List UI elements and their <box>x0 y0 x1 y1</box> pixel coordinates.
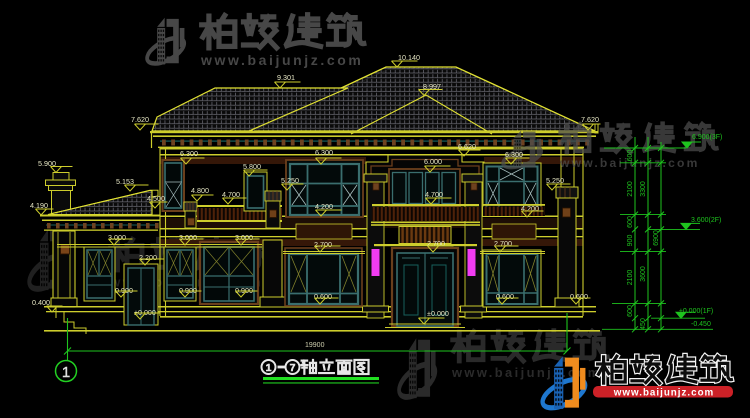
svg-text:600: 600 <box>627 305 634 317</box>
svg-text:3.000: 3.000 <box>108 233 126 242</box>
svg-text:9.301: 9.301 <box>277 73 295 82</box>
svg-text:600: 600 <box>627 216 634 228</box>
svg-text:2100: 2100 <box>627 181 634 197</box>
svg-text:6.900(3F): 6.900(3F) <box>692 134 722 141</box>
svg-text:www.baijunjz.com: www.baijunjz.com <box>451 365 602 380</box>
svg-text:450: 450 <box>640 318 647 330</box>
svg-text:7.620: 7.620 <box>581 115 599 124</box>
svg-text:www.baijunjz.com: www.baijunjz.com <box>200 52 363 68</box>
svg-text:3.000: 3.000 <box>235 233 253 242</box>
svg-text:600: 600 <box>627 150 634 162</box>
svg-text:7.620: 7.620 <box>131 115 149 124</box>
svg-text:0.600: 0.600 <box>496 292 514 301</box>
svg-text:4.200: 4.200 <box>521 204 539 213</box>
svg-text:900: 900 <box>627 235 634 247</box>
svg-text:6.300: 6.300 <box>315 148 333 157</box>
svg-text:4.800: 4.800 <box>191 186 209 195</box>
svg-text:3.000: 3.000 <box>179 233 197 242</box>
svg-text:6.300: 6.300 <box>180 149 198 158</box>
svg-text:±0.000: ±0.000 <box>427 309 449 318</box>
svg-text:19900: 19900 <box>305 342 325 349</box>
svg-text:6900: 6900 <box>653 230 660 246</box>
svg-text:0.600: 0.600 <box>314 292 332 301</box>
svg-text:1: 1 <box>266 362 272 374</box>
svg-text:www.baijunjz.com: www.baijunjz.com <box>613 388 715 399</box>
svg-text:-0.450: -0.450 <box>691 321 711 328</box>
svg-text:2.700: 2.700 <box>314 240 332 249</box>
svg-text:2.700: 2.700 <box>494 239 512 248</box>
svg-text:2.700: 2.700 <box>427 239 445 248</box>
svg-text:7: 7 <box>290 362 296 374</box>
svg-text:3300: 3300 <box>640 181 647 197</box>
svg-text:0.600: 0.600 <box>570 292 588 301</box>
svg-text:6.000: 6.000 <box>424 157 442 166</box>
svg-text:1: 1 <box>62 364 70 381</box>
svg-text:2100: 2100 <box>627 270 634 286</box>
svg-text:3600: 3600 <box>640 266 647 282</box>
svg-text:2.200: 2.200 <box>139 253 157 262</box>
